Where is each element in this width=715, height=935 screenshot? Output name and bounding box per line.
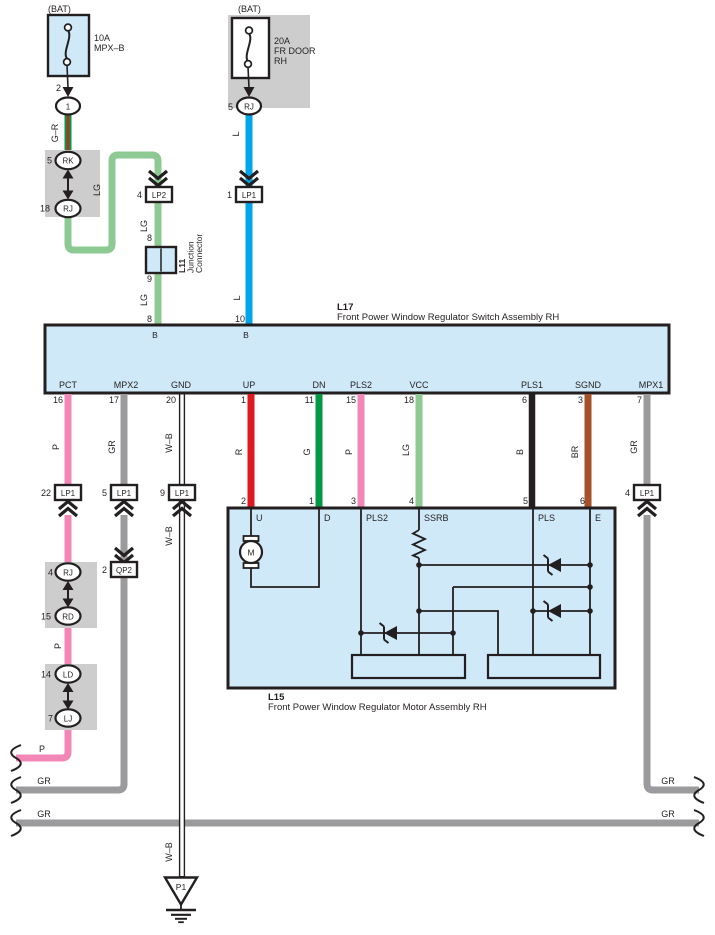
wire-color-label: GR [629,440,639,454]
pin-number: 4 [409,496,414,506]
wire-color-label: B [515,449,525,455]
junction-dot [587,608,593,614]
pin-number: 20 [166,395,176,405]
connector-label: LJ [64,715,72,724]
connector-label: LP2 [152,191,167,200]
bat-label: (BAT) [238,4,261,14]
pin-number: 9 [160,488,165,498]
wire-color-label: GR [37,809,51,819]
pin-number: 2 [56,83,61,93]
fuse-terminal [246,27,253,34]
ground-point: P1 [165,878,197,923]
junction-dot [416,608,422,614]
wire-color-label: R [234,448,244,455]
ground-wire: W–B W–B [164,394,182,877]
pin-name: E [595,513,601,523]
wiring-diagram: (BAT) 10A MPX–B 2 (BAT) 20A FR DOOR RH 5… [0,0,715,930]
wire-color-label: G [302,448,312,455]
pin-number: 7 [48,714,53,724]
pin-number: 5 [523,496,528,506]
pin-name: U [256,513,263,523]
pin-name: PLS [538,513,555,523]
top-wires: G–R LG LG LG L L [45,115,249,326]
connector-label: QP2 [116,566,133,575]
component-box [228,508,615,688]
wire-color-label: LG [139,220,149,232]
l15-motor-assembly: 2 1 3 4 5 6 U D PLS2 SSRB PLS E [228,496,615,713]
wire-color-label: GR [37,776,51,786]
wire-color-label: P [53,643,63,649]
pin-name: MPX1 [639,380,664,390]
pin-number: 18 [404,395,414,405]
wire-color-label: W–B [164,526,174,546]
wire-color-label: P [51,444,61,450]
pin-number: 16 [53,395,63,405]
pin-number: 9 [147,274,152,284]
pin-number: 2 [102,565,107,575]
chevron-up-icon [115,509,133,517]
pin-number: 18 [40,204,50,214]
wire-color-label: BR [570,445,580,458]
wire-color-label: G–R [50,123,60,142]
junction-dot [450,630,456,636]
connector-label: RJ [63,205,73,214]
connector-label: RK [62,157,74,166]
pin-number: 4 [137,190,142,200]
fuse-fr-door-rh: (BAT) 20A FR DOOR RH 5 [228,4,316,112]
pin-name: B [152,330,158,340]
fuse-terminal [245,61,252,68]
pin-number: 14 [41,670,51,680]
pin-number: 8 [147,233,152,243]
wire-color-label: W–B [164,433,174,453]
wire-color-label: GR [107,440,117,454]
fuse-name: RH [274,56,287,66]
pin-number: 1 [227,190,232,200]
pin-number: 22 [41,488,51,498]
connector-label: LP1 [117,489,132,498]
fuse-name: FR DOOR [274,46,316,56]
junction-dot [416,562,422,568]
connector-label: RJ [63,569,73,578]
connector-label: LD [63,671,73,680]
wire-color-label: L [232,295,242,300]
wire-color-label: GR [661,809,675,819]
connector-label: LP1 [61,489,76,498]
wire-color-label: LG [92,184,102,196]
ground-label: P1 [176,882,187,892]
pin-name: UP [243,380,256,390]
connector-label: RD [62,613,74,622]
wire-color-label: W–B [164,842,174,862]
lead [67,65,68,88]
pin-number: 4 [625,488,630,498]
pin-number: 5 [102,488,107,498]
component-name: Front Power Window Regulator Switch Asse… [337,312,559,323]
pin-number: 15 [346,395,356,405]
component-name: Front Power Window Regulator Motor Assem… [268,702,487,713]
chevron-up-icon [638,509,656,517]
pin-number: 4 [48,568,53,578]
pin-number: 5 [47,156,52,166]
wire-color-label: LG [401,444,411,456]
wire-color-label: L [231,131,241,136]
motor-label: M [247,548,254,558]
pin-name: D [324,513,331,523]
fuse-name: MPX–B [94,43,125,53]
wire-color-label: P [39,744,45,754]
connector-label: 1 [66,103,71,112]
pin-name: PCT [59,380,78,390]
pin-number: 6 [580,496,585,506]
fuse-rating: 20A [274,36,290,46]
wiring-diagram-page: (BAT) 10A MPX–B 2 (BAT) 20A FR DOOR RH 5… [0,0,715,930]
pin-number: 10 [235,314,245,324]
l17-switch-assembly: L17 Front Power Window Regulator Switch … [45,302,669,405]
fuse-mpx-b: (BAT) 10A MPX–B 2 [48,4,125,97]
fuse-terminal [65,24,72,31]
pin-number: 3 [578,395,583,405]
connector-label: LP1 [640,489,655,498]
pin-number: 15 [41,612,51,622]
junction-dot [530,608,536,614]
pin-name: B [243,330,249,340]
pin-number: 11 [305,395,314,405]
pin-number: 17 [109,395,119,405]
pin-name: VCC [409,380,429,390]
pin-number: 2 [241,496,246,506]
pin-number: 1 [309,496,314,506]
pin-number: 3 [351,496,356,506]
connector-label: RJ [244,103,254,112]
connector-label: LP1 [242,191,257,200]
junction-dot [587,562,593,568]
fuse-terminal [64,59,71,66]
bat-label: (BAT) [48,4,71,14]
pin-name: SGND [575,380,602,390]
connector-label: LP1 [175,489,190,498]
pin-name: PLS1 [521,380,543,390]
pin-number: 6 [522,395,527,405]
lead [248,67,249,88]
wire-color-label: P [344,449,354,455]
pin-number: 7 [637,395,642,405]
chevron-up-icon [59,509,77,517]
pin-name: PLS2 [350,380,372,390]
pin-number: 1 [241,395,246,405]
fuse-rating: 10A [94,33,110,43]
arrow-down-icon [63,87,74,97]
wire-color-label: LG [139,294,149,306]
pin-name: GND [171,380,192,390]
wire-gr [647,515,699,790]
pin-number: 8 [147,314,152,324]
pin-name: PLS2 [366,513,388,523]
pin-number: 5 [228,102,233,112]
junction-dot [358,630,364,636]
wire-color-label: GR [661,776,675,786]
pin-name: MPX2 [114,380,139,390]
pin-name: SSRB [424,513,449,523]
pin-name: DN [313,380,326,390]
mid-wires: P GR W–B R G P LG B BR GR [51,394,647,508]
component-name: Connector [194,234,204,273]
junction-dot [587,584,593,590]
